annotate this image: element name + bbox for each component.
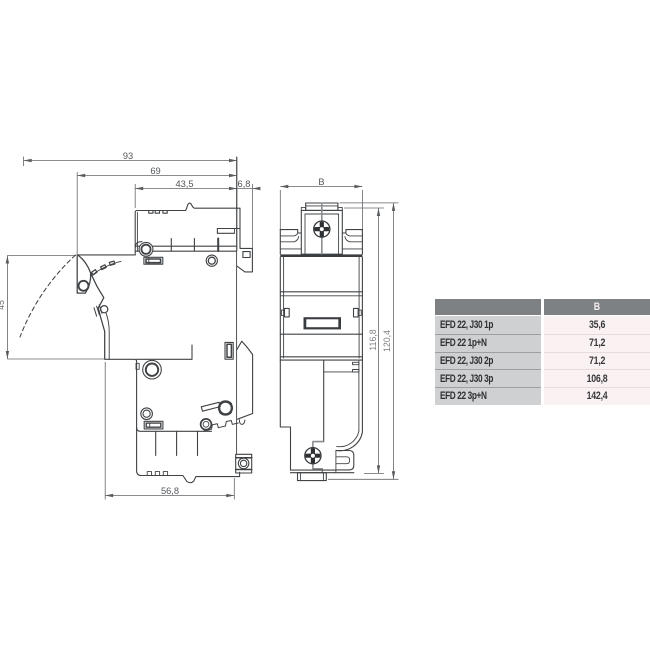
- svg-text:120,4: 120,4: [382, 330, 392, 352]
- svg-text:69: 69: [150, 166, 160, 176]
- svg-text:43,5: 43,5: [175, 179, 193, 189]
- svg-text:6,8: 6,8: [238, 179, 251, 189]
- svg-text:116,8: 116,8: [368, 329, 378, 350]
- svg-text:B: B: [318, 177, 324, 187]
- svg-text:56,8: 56,8: [161, 486, 179, 496]
- svg-text:45: 45: [0, 300, 6, 310]
- svg-text:93: 93: [123, 151, 133, 161]
